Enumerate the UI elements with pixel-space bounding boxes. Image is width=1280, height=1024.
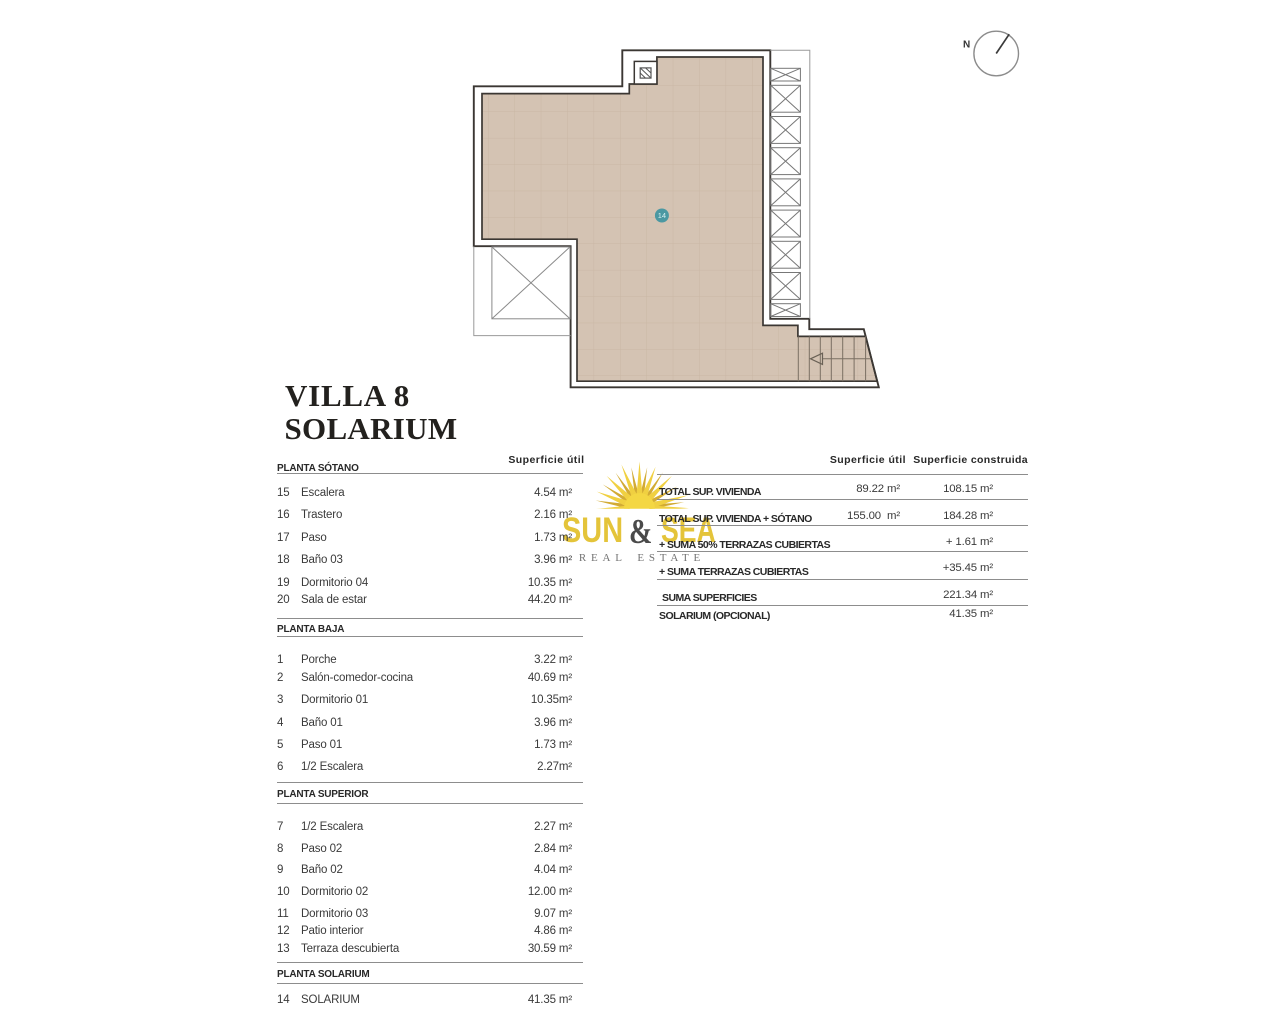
svg-text:14: 14 <box>658 211 666 220</box>
svg-text:N: N <box>963 39 970 50</box>
